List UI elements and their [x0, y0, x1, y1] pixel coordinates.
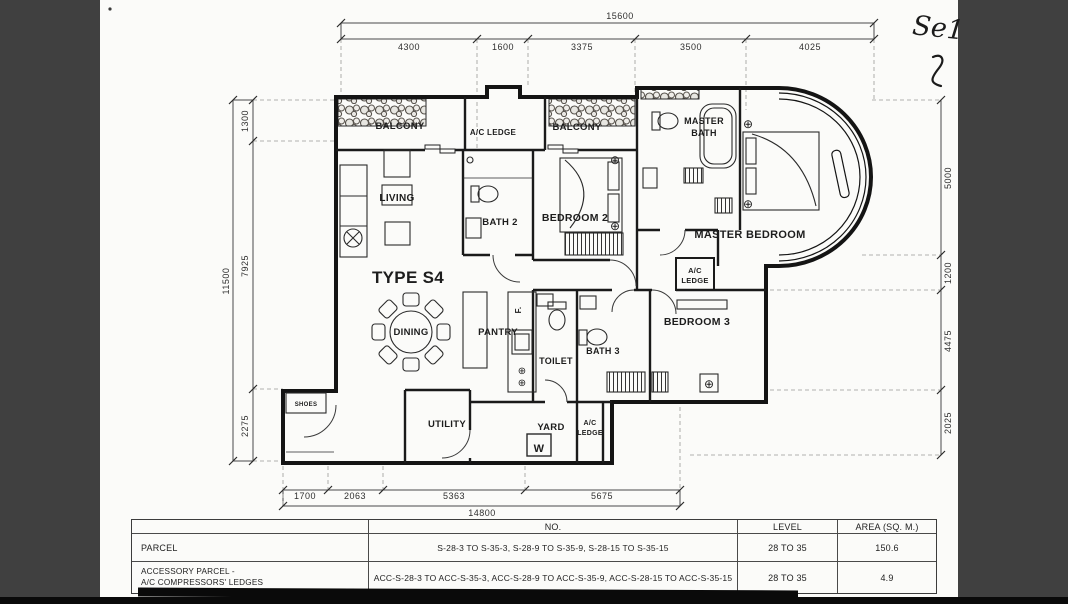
table-header-level: LEVEL	[738, 520, 838, 534]
label-fridge: F.	[514, 307, 523, 314]
svg-text:⊕: ⊕	[743, 117, 753, 131]
svg-text:⊕: ⊕	[743, 197, 753, 211]
label-toilet: TOILET	[539, 356, 573, 366]
label-pantry: PANTRY	[478, 327, 518, 338]
dim-bottom-3: 5363	[443, 491, 465, 501]
label-bath3: BATH 3	[586, 346, 620, 356]
label-washer: W	[534, 443, 545, 455]
svg-text:⊕: ⊕	[610, 153, 620, 167]
table-row-accessory-level: 28 TO 35	[738, 562, 838, 593]
label-dining: DINING	[393, 327, 428, 338]
dim-left-total: 11500	[221, 268, 231, 295]
label-ac-mid-2: LEDGE	[681, 276, 708, 285]
dim-right-3: 4475	[943, 330, 953, 352]
door-arcs	[304, 230, 685, 458]
label-bedroom3: BEDROOM 3	[664, 316, 730, 328]
pen-stroke	[933, 56, 943, 86]
table-row-accessory-area: 4.9	[838, 562, 936, 593]
dim-top-5: 4025	[799, 42, 821, 52]
label-ac-ledge-top: A/C LEDGE	[470, 128, 517, 137]
dim-top-2: 1600	[492, 42, 514, 52]
scan-bottom-strip	[0, 597, 1068, 604]
svg-text:⊕: ⊕	[518, 366, 526, 377]
label-ac-bottom-1: A/C	[584, 420, 597, 427]
svg-text:⊕: ⊕	[518, 378, 526, 389]
dim-top-3: 3375	[571, 42, 593, 52]
label-utility: UTILITY	[428, 419, 466, 430]
pen-dot	[108, 7, 111, 10]
svg-text:⊕: ⊕	[610, 219, 620, 233]
label-bedroom2: BEDROOM 2	[542, 212, 608, 224]
scanned-floorplan-screenshot: 15600 4300 1600 3375 3500 4025 11500 130…	[0, 0, 1068, 604]
table-row-parcel-no: S-28-3 TO S-35-3, S-28-9 TO S-35-9, S-28…	[369, 534, 738, 562]
unit-type-label: TYPE S4	[372, 268, 444, 287]
table-header-area: AREA (SQ. M.)	[838, 520, 936, 534]
label-yard: YARD	[537, 422, 564, 433]
dimension-labels: 15600 4300 1600 3375 3500 4025 11500 130…	[221, 11, 953, 518]
label-bath2: BATH 2	[482, 217, 517, 228]
dim-right-4: 2025	[943, 412, 953, 434]
table-row-parcel-area: 150.6	[838, 534, 936, 562]
pen-annotation: Se1	[108, 7, 965, 86]
dim-right-2: 1200	[943, 262, 953, 284]
dim-bottom-2: 2063	[344, 491, 366, 501]
label-master-bath-1: MASTER	[684, 116, 724, 126]
table-row-parcel-level: 28 TO 35	[738, 534, 838, 562]
dim-left-3: 2275	[240, 415, 250, 437]
floorplan-drawing: 15600 4300 1600 3375 3500 4025 11500 130…	[0, 0, 1068, 604]
dim-left-1: 1300	[240, 110, 250, 132]
dim-bottom-1: 1700	[294, 491, 316, 501]
dim-bottom-total: 14800	[468, 508, 496, 518]
label-ac-bottom-2: LEDGE	[577, 430, 603, 437]
svg-text:⊕: ⊕	[704, 377, 714, 391]
table-corner-cell	[132, 520, 369, 534]
table-row-parcel-label: PARCEL	[132, 534, 369, 562]
dim-left-2: 7925	[240, 255, 250, 277]
accessory-label-line2: A/C COMPRESSORS' LEDGES	[141, 578, 263, 588]
parcel-table: NO. LEVEL AREA (SQ. M.) PARCEL S-28-3 TO…	[131, 519, 937, 594]
handwritten-note: Se1	[911, 10, 966, 46]
label-balcony-right: BALCONY	[552, 122, 601, 133]
label-master-bedroom: MASTER BEDROOM	[694, 229, 805, 241]
label-master-bath-2: BATH	[691, 128, 717, 138]
label-ac-mid-1: A/C	[688, 266, 702, 275]
accessory-label-line1: ACCESSORY PARCEL -	[141, 567, 235, 577]
dim-bottom-4: 5675	[591, 491, 613, 501]
dim-top-1: 4300	[398, 42, 420, 52]
label-balcony-left: BALCONY	[375, 121, 424, 132]
label-shoes: SHOES	[295, 402, 318, 408]
label-living: LIVING	[379, 193, 414, 204]
dim-top-4: 3500	[680, 42, 702, 52]
table-header-no: NO.	[369, 520, 738, 534]
dim-right-1: 5000	[943, 167, 953, 189]
dim-top-total: 15600	[606, 11, 634, 21]
